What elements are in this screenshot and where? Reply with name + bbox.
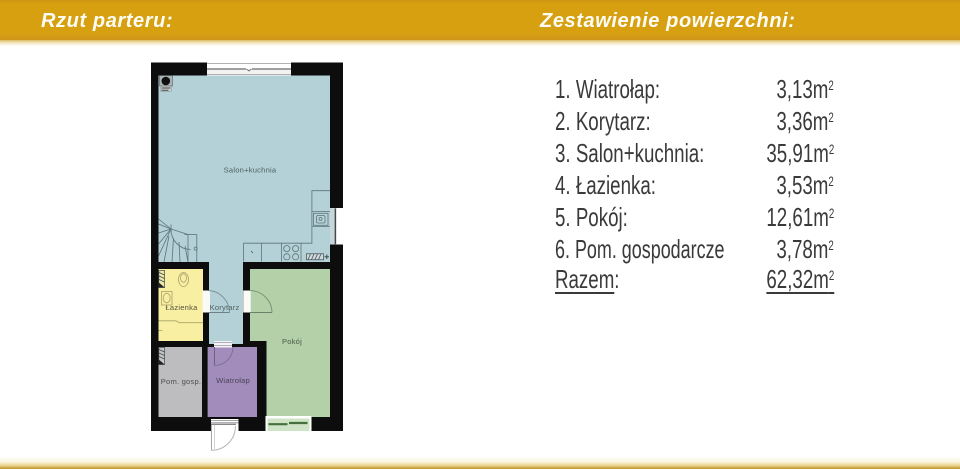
svg-text:Korytarz: Korytarz bbox=[210, 303, 240, 312]
svg-text:Łazienka: Łazienka bbox=[166, 303, 199, 312]
svg-text:Wiatrołap: Wiatrołap bbox=[216, 376, 250, 385]
svg-text:Pom. gosp.: Pom. gosp. bbox=[161, 377, 201, 386]
svg-text:Pokój: Pokój bbox=[282, 337, 302, 346]
